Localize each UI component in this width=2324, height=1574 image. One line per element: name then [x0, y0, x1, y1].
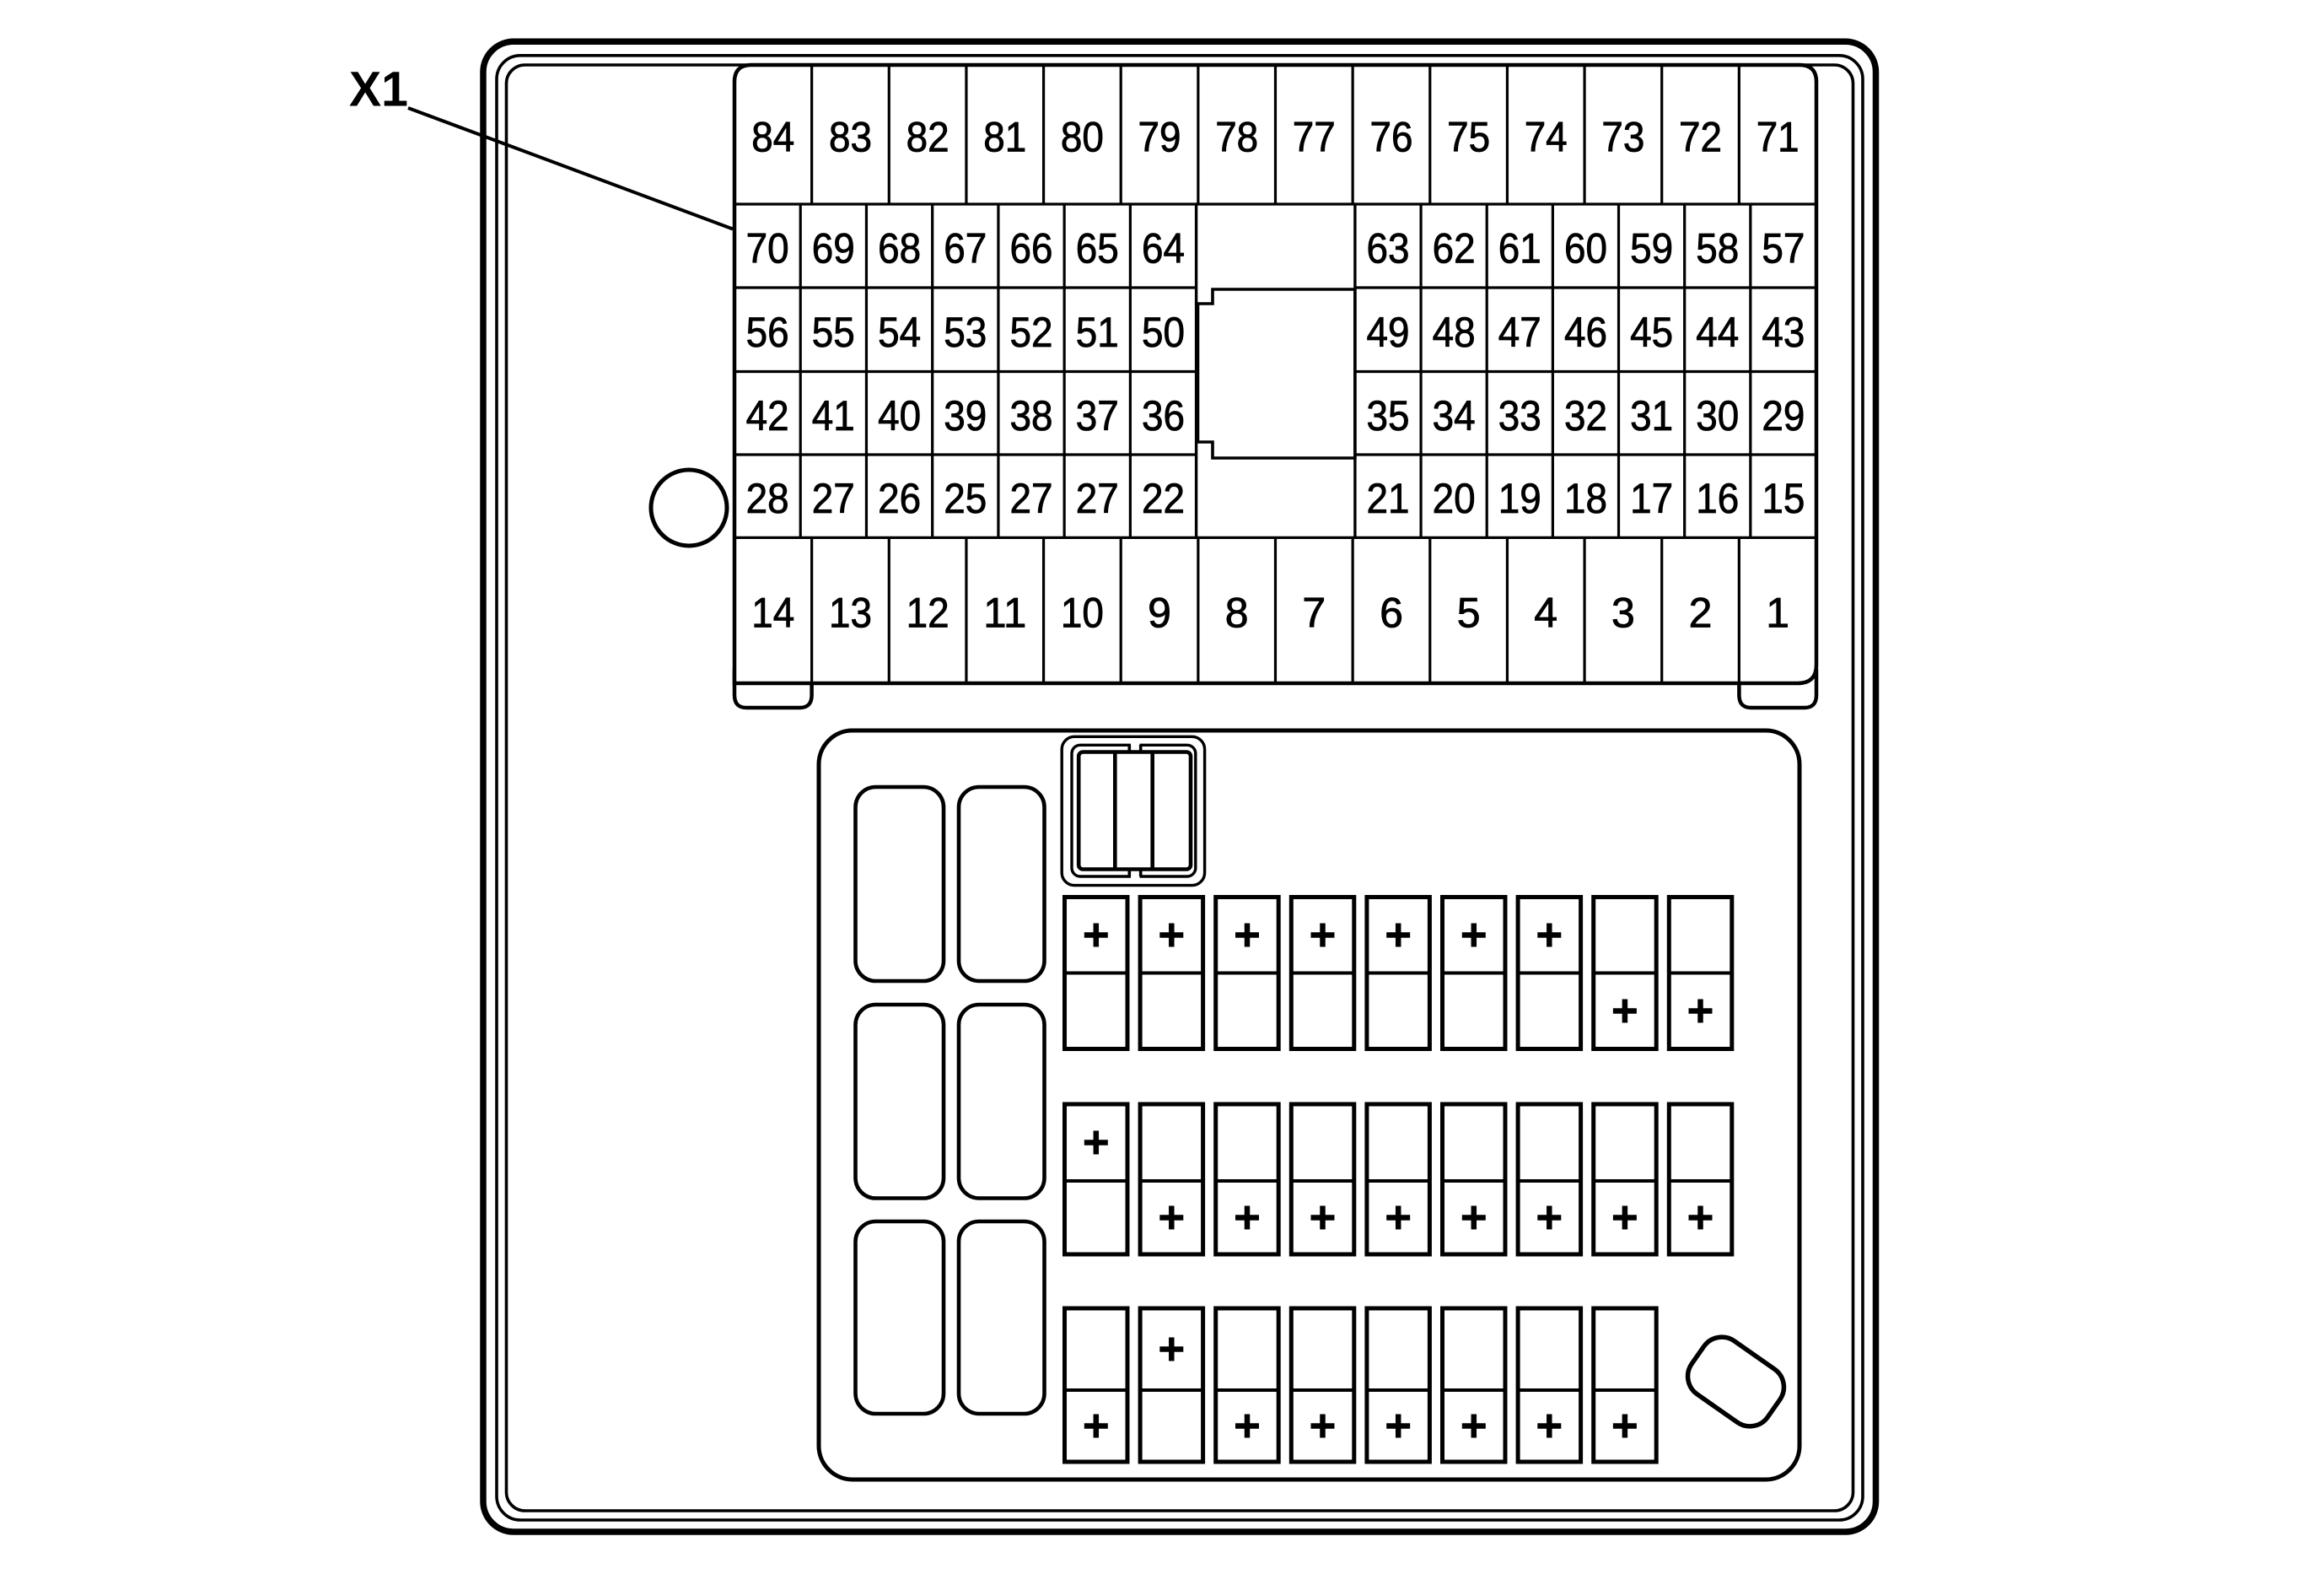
svg-text:72: 72: [1679, 114, 1722, 161]
svg-text:40: 40: [878, 392, 921, 439]
svg-text:27: 27: [1076, 475, 1119, 522]
svg-text:48: 48: [1433, 309, 1476, 356]
svg-text:18: 18: [1564, 475, 1607, 522]
svg-text:34: 34: [1433, 392, 1476, 439]
svg-text:7: 7: [1302, 590, 1326, 637]
svg-text:4: 4: [1534, 590, 1557, 637]
svg-text:28: 28: [746, 475, 789, 522]
svg-text:32: 32: [1564, 392, 1607, 439]
svg-text:3: 3: [1611, 590, 1635, 637]
svg-text:54: 54: [878, 309, 921, 356]
svg-text:78: 78: [1215, 114, 1258, 161]
svg-text:22: 22: [1142, 475, 1185, 522]
svg-text:67: 67: [944, 225, 987, 272]
svg-text:66: 66: [1010, 225, 1053, 272]
svg-text:30: 30: [1696, 392, 1739, 439]
svg-text:83: 83: [829, 114, 872, 161]
svg-text:82: 82: [906, 114, 950, 161]
svg-text:76: 76: [1370, 114, 1413, 161]
svg-text:80: 80: [1061, 114, 1104, 161]
svg-text:35: 35: [1367, 392, 1410, 439]
svg-text:1: 1: [1766, 590, 1789, 637]
svg-text:8: 8: [1225, 590, 1249, 637]
svg-text:45: 45: [1630, 309, 1673, 356]
svg-text:63: 63: [1367, 225, 1410, 272]
svg-text:51: 51: [1076, 309, 1119, 356]
svg-text:2: 2: [1689, 590, 1713, 637]
svg-text:77: 77: [1293, 114, 1336, 161]
svg-text:49: 49: [1367, 309, 1410, 356]
svg-text:58: 58: [1696, 225, 1739, 272]
svg-text:47: 47: [1498, 309, 1541, 356]
svg-text:84: 84: [751, 114, 794, 161]
svg-text:81: 81: [983, 114, 1026, 161]
svg-text:17: 17: [1630, 475, 1673, 522]
svg-text:15: 15: [1762, 475, 1805, 522]
svg-text:55: 55: [812, 309, 855, 356]
svg-text:14: 14: [751, 590, 794, 637]
svg-text:11: 11: [983, 590, 1026, 637]
svg-text:65: 65: [1076, 225, 1119, 272]
svg-text:42: 42: [746, 392, 789, 439]
svg-text:29: 29: [1762, 392, 1805, 439]
svg-text:50: 50: [1142, 309, 1185, 356]
svg-text:53: 53: [944, 309, 987, 356]
svg-text:70: 70: [746, 225, 789, 272]
svg-text:59: 59: [1630, 225, 1673, 272]
svg-text:13: 13: [829, 590, 872, 637]
svg-text:44: 44: [1696, 309, 1739, 356]
svg-text:X1: X1: [349, 62, 408, 117]
svg-text:69: 69: [812, 225, 855, 272]
svg-text:39: 39: [944, 392, 987, 439]
svg-text:61: 61: [1498, 225, 1541, 272]
svg-text:52: 52: [1010, 309, 1053, 356]
svg-text:71: 71: [1756, 114, 1799, 161]
svg-text:43: 43: [1762, 309, 1805, 356]
svg-text:16: 16: [1696, 475, 1739, 522]
svg-text:21: 21: [1367, 475, 1410, 522]
svg-text:60: 60: [1564, 225, 1607, 272]
svg-text:6: 6: [1380, 590, 1403, 637]
svg-text:27: 27: [1010, 475, 1053, 522]
svg-text:31: 31: [1630, 392, 1673, 439]
svg-text:57: 57: [1762, 225, 1805, 272]
svg-text:64: 64: [1142, 225, 1185, 272]
svg-text:9: 9: [1148, 590, 1171, 637]
svg-text:38: 38: [1010, 392, 1053, 439]
svg-text:27: 27: [812, 475, 855, 522]
svg-text:12: 12: [906, 590, 950, 637]
svg-text:20: 20: [1433, 475, 1476, 522]
svg-text:10: 10: [1061, 590, 1104, 637]
svg-text:79: 79: [1138, 114, 1181, 161]
svg-text:74: 74: [1525, 114, 1568, 161]
svg-text:36: 36: [1142, 392, 1185, 439]
svg-text:56: 56: [746, 309, 789, 356]
svg-text:19: 19: [1498, 475, 1541, 522]
svg-text:75: 75: [1447, 114, 1490, 161]
svg-text:26: 26: [878, 475, 921, 522]
svg-text:5: 5: [1457, 590, 1481, 637]
svg-text:41: 41: [812, 392, 855, 439]
svg-text:37: 37: [1076, 392, 1119, 439]
svg-text:73: 73: [1601, 114, 1644, 161]
svg-text:25: 25: [944, 475, 987, 522]
svg-text:46: 46: [1564, 309, 1607, 356]
svg-text:33: 33: [1498, 392, 1541, 439]
svg-text:62: 62: [1433, 225, 1476, 272]
svg-text:68: 68: [878, 225, 921, 272]
